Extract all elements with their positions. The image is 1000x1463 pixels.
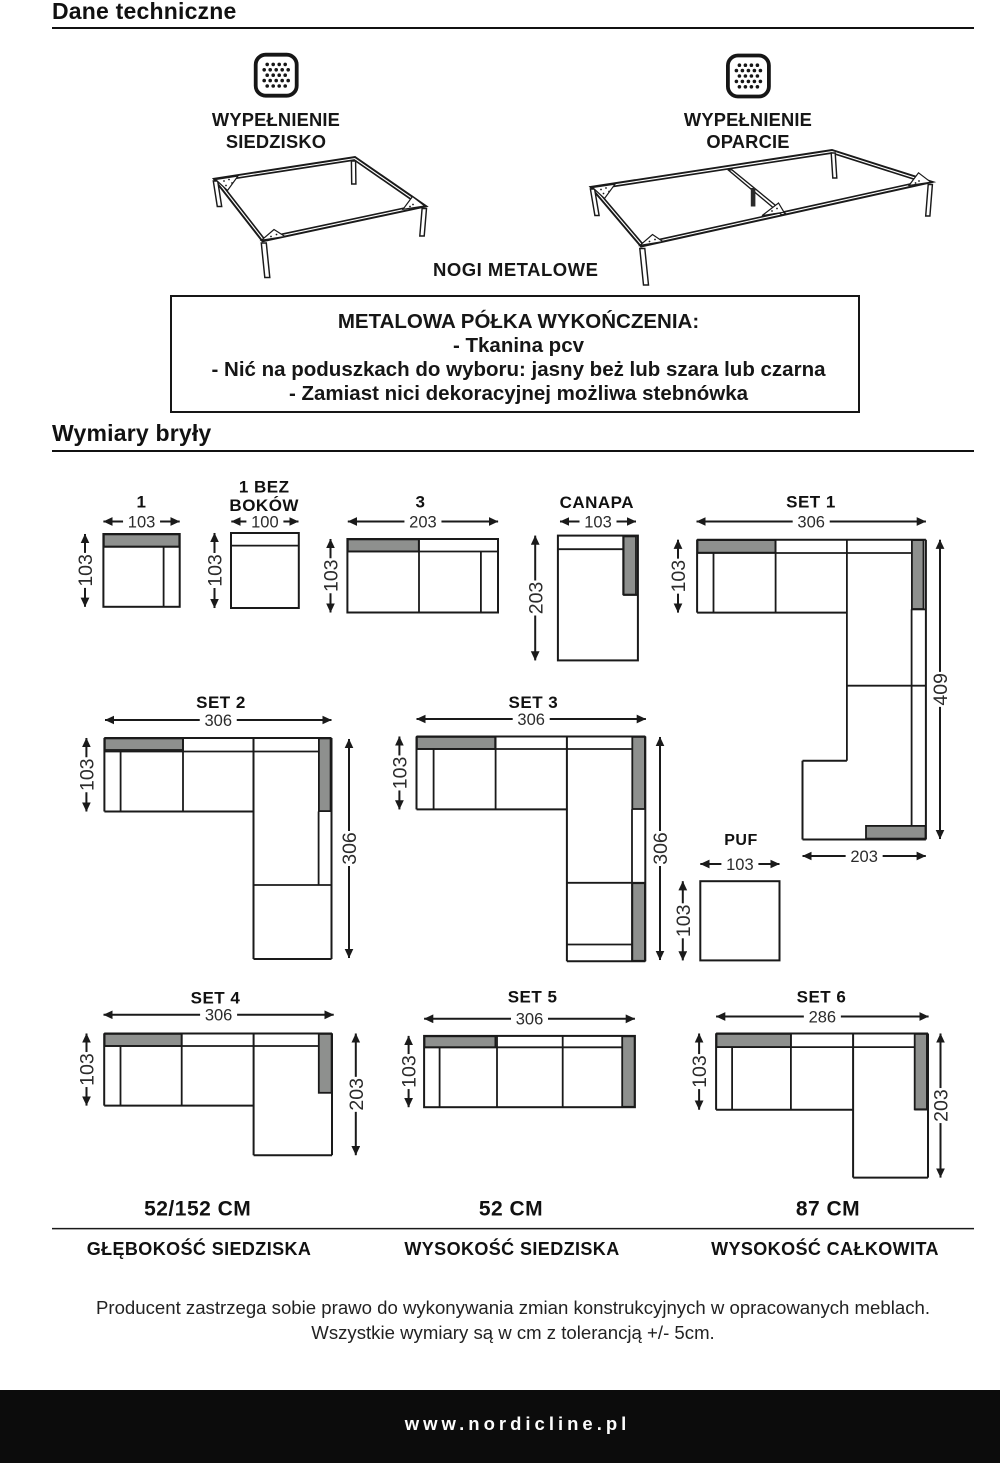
svg-text:SET 1: SET 1 (786, 493, 836, 512)
svg-text:SET 2: SET 2 (196, 693, 246, 712)
svg-text:103: 103 (205, 554, 227, 587)
svg-text:SET 5: SET 5 (508, 988, 558, 1007)
svg-text:PUF: PUF (724, 832, 758, 849)
svg-text:103: 103 (390, 757, 412, 790)
svg-text:87 CM: 87 CM (796, 1198, 860, 1221)
svg-text:103: 103 (77, 1053, 99, 1086)
svg-text:306: 306 (517, 711, 545, 729)
svg-text:1: 1 (137, 493, 147, 512)
svg-text:100: 100 (251, 513, 279, 531)
svg-text:WYSOKOŚĆ CAŁKOWITA: WYSOKOŚĆ CAŁKOWITA (711, 1238, 939, 1259)
svg-text:3: 3 (416, 493, 426, 512)
svg-text:203: 203 (931, 1089, 953, 1122)
svg-text:1 BEZ: 1 BEZ (239, 478, 290, 497)
svg-text:306: 306 (205, 1007, 233, 1025)
svg-text:SET 6: SET 6 (797, 988, 847, 1007)
svg-text:52 CM: 52 CM (479, 1198, 543, 1221)
svg-text:103: 103 (584, 513, 612, 531)
svg-text:SET 4: SET 4 (191, 989, 241, 1008)
svg-text:103: 103 (673, 905, 695, 938)
svg-text:306: 306 (797, 513, 825, 531)
svg-text:203: 203 (850, 848, 878, 866)
svg-text:52/152 CM: 52/152 CM (144, 1198, 251, 1221)
svg-text:203: 203 (525, 582, 547, 615)
svg-text:306: 306 (516, 1011, 544, 1029)
svg-text:409: 409 (930, 673, 952, 706)
svg-text:286: 286 (809, 1008, 837, 1026)
svg-text:203: 203 (346, 1078, 368, 1111)
svg-text:WYSOKOŚĆ SIEDZISKA: WYSOKOŚĆ SIEDZISKA (404, 1238, 619, 1259)
svg-text:103: 103 (128, 513, 156, 531)
svg-text:103: 103 (321, 559, 343, 592)
svg-text:GŁĘBOKOŚĆ SIEDZISKA: GŁĘBOKOŚĆ SIEDZISKA (87, 1238, 312, 1259)
svg-text:103: 103 (668, 560, 690, 593)
svg-text:306: 306 (650, 832, 672, 865)
svg-text:103: 103 (75, 554, 97, 587)
svg-text:103: 103 (399, 1055, 421, 1088)
svg-text:306: 306 (339, 832, 361, 865)
svg-text:CANAPA: CANAPA (560, 493, 634, 512)
svg-text:103: 103 (689, 1055, 711, 1088)
svg-text:306: 306 (204, 712, 232, 730)
svg-text:BOKÓW: BOKÓW (229, 496, 299, 515)
svg-text:203: 203 (409, 513, 437, 531)
svg-text:103: 103 (77, 758, 99, 791)
svg-text:103: 103 (726, 856, 754, 874)
svg-text:SET 3: SET 3 (509, 693, 559, 712)
